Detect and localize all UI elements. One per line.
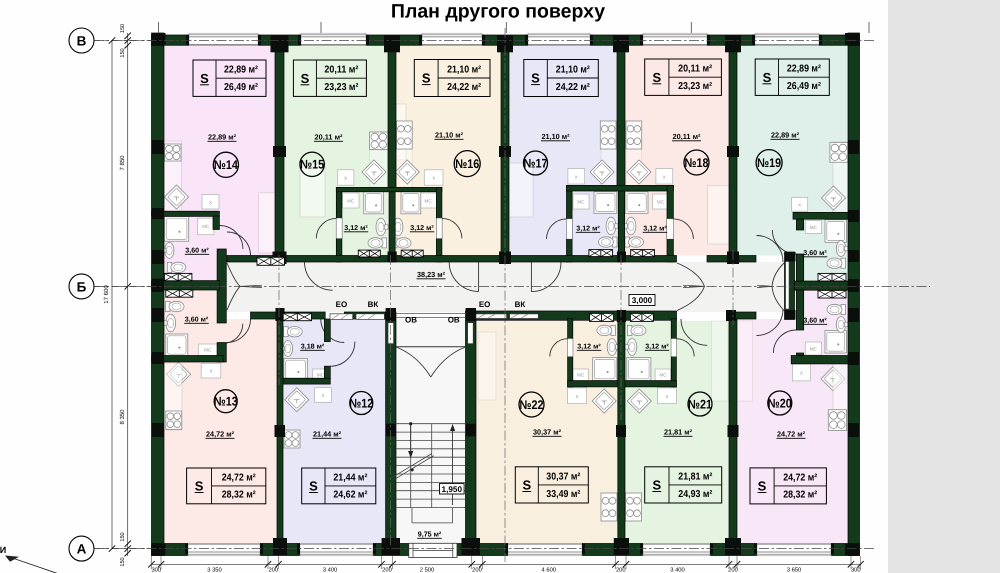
svg-text:23,23 м²: 23,23 м² [678, 81, 713, 92]
svg-text:S: S [309, 479, 318, 494]
svg-text:4 600: 4 600 [542, 567, 557, 573]
svg-text:17 600: 17 600 [103, 285, 110, 304]
svg-text:3,18 м²: 3,18 м² [301, 344, 325, 351]
svg-text:№13: №13 [214, 395, 238, 409]
svg-text:№14: №14 [214, 158, 238, 172]
svg-text:38,23 м²: 38,23 м² [417, 270, 446, 279]
svg-text:ВК: ВК [515, 300, 526, 309]
svg-text:3,12 м²: 3,12 м² [576, 226, 600, 233]
svg-text:x: x [575, 174, 578, 180]
svg-text:№15: №15 [300, 158, 324, 172]
svg-text:x: x [210, 369, 213, 375]
svg-text:30,37 м²: 30,37 м² [533, 428, 562, 437]
svg-text:3 400: 3 400 [323, 567, 338, 573]
svg-text:21,10 м²: 21,10 м² [542, 132, 571, 141]
svg-text:26,49 м²: 26,49 м² [787, 81, 822, 92]
svg-text:Б: Б [77, 279, 87, 294]
svg-text:3 400: 3 400 [670, 567, 685, 573]
svg-text:23,23 м²: 23,23 м² [324, 82, 359, 93]
svg-text:30,37 м²: 30,37 м² [546, 472, 581, 483]
svg-text:S: S [758, 479, 767, 494]
svg-text:24,22 м²: 24,22 м² [556, 82, 591, 93]
svg-text:200: 200 [472, 567, 482, 573]
svg-text:№18: №18 [685, 156, 709, 170]
svg-text:x: x [344, 176, 347, 182]
svg-text:МС: МС [204, 348, 212, 353]
svg-text:3,60 м²: 3,60 м² [185, 317, 209, 324]
svg-text:План другого поверху: План другого поверху [391, 1, 605, 23]
svg-text:20,11 м²: 20,11 м² [673, 132, 702, 141]
svg-text:№20: №20 [768, 396, 792, 410]
svg-text:2 500: 2 500 [420, 567, 435, 573]
svg-text:S: S [422, 71, 431, 86]
svg-text:МС: МС [577, 373, 585, 378]
svg-text:200: 200 [382, 567, 392, 573]
svg-text:№19: №19 [757, 156, 781, 170]
svg-text:№12: №12 [349, 396, 373, 410]
svg-text:3,000: 3,000 [632, 296, 653, 305]
svg-text:МС: МС [577, 199, 585, 204]
svg-text:x: x [663, 174, 666, 180]
svg-text:S: S [652, 70, 661, 85]
svg-text:№16: №16 [455, 157, 479, 171]
svg-text:МС: МС [657, 199, 665, 204]
svg-text:S: S [195, 479, 204, 494]
svg-text:МС: МС [347, 198, 355, 203]
svg-text:200: 200 [728, 567, 738, 573]
svg-text:24,72 м²: 24,72 м² [777, 430, 806, 439]
svg-text:S: S [522, 478, 531, 493]
svg-text:3,12 м²: 3,12 м² [344, 225, 368, 232]
svg-text:МС: МС [202, 224, 210, 229]
svg-text:S: S [652, 478, 661, 493]
svg-text:3,60 м²: 3,60 м² [803, 250, 827, 257]
svg-text:x: x [800, 370, 803, 376]
svg-text:В: В [77, 34, 87, 49]
svg-text:МС: МС [810, 346, 818, 351]
svg-text:S: S [531, 71, 540, 86]
svg-text:x: x [322, 393, 325, 399]
svg-text:3,12 м²: 3,12 м² [643, 226, 667, 233]
svg-text:22,89 м²: 22,89 м² [771, 131, 800, 140]
svg-text:150: 150 [120, 532, 126, 541]
svg-text:21,44 м²: 21,44 м² [313, 430, 342, 439]
svg-text:150: 150 [120, 557, 126, 566]
svg-text:28,32 м²: 28,32 м² [222, 490, 257, 501]
svg-text:300: 300 [851, 567, 861, 573]
svg-text:22,89 м²: 22,89 м² [208, 133, 237, 142]
svg-text:x: x [666, 394, 669, 400]
svg-text:24,22 м²: 24,22 м² [447, 82, 482, 93]
svg-text:3,12 м²: 3,12 м² [410, 225, 434, 232]
svg-text:x: x [576, 394, 579, 400]
svg-text:9,75 м²: 9,75 м² [418, 530, 442, 539]
svg-text:200: 200 [616, 567, 626, 573]
svg-text:150: 150 [120, 48, 126, 57]
svg-text:22,89 м²: 22,89 м² [224, 65, 259, 76]
svg-text:22,89 м²: 22,89 м² [787, 64, 822, 75]
svg-text:S: S [301, 71, 310, 86]
svg-text:МС: МС [810, 225, 818, 230]
svg-text:1,950: 1,950 [442, 485, 463, 494]
svg-text:3 350: 3 350 [207, 567, 222, 573]
svg-text:20,11 м²: 20,11 м² [678, 64, 713, 75]
svg-text:x: x [209, 200, 212, 206]
svg-text:№21: №21 [688, 397, 712, 411]
svg-text:МС: МС [425, 198, 433, 203]
svg-text:ЕО: ЕО [479, 300, 491, 309]
svg-text:20,11 м²: 20,11 м² [315, 133, 344, 142]
svg-text:24,72 м²: 24,72 м² [222, 473, 257, 484]
svg-text:21,10 м²: 21,10 м² [435, 131, 464, 140]
svg-text:3,60 м²: 3,60 м² [185, 248, 209, 255]
svg-text:8 350: 8 350 [119, 409, 126, 425]
svg-text:24,72 м²: 24,72 м² [783, 473, 818, 484]
svg-text:ОВ: ОВ [405, 316, 417, 325]
svg-text:7 850: 7 850 [119, 155, 126, 171]
svg-text:ОВ: ОВ [448, 316, 460, 325]
svg-text:3,12 м²: 3,12 м² [577, 344, 601, 351]
svg-text:3,12 м²: 3,12 м² [645, 344, 669, 351]
svg-text:x: x [432, 176, 435, 182]
svg-text:МС: МС [659, 373, 667, 378]
svg-text:x: x [798, 202, 801, 208]
svg-text:28,32 м²: 28,32 м² [783, 490, 818, 501]
svg-text:А: А [77, 542, 87, 557]
svg-text:21,10 м²: 21,10 м² [556, 64, 591, 75]
svg-text:№22: №22 [520, 398, 544, 412]
svg-text:ВК: ВК [368, 300, 379, 309]
svg-text:300: 300 [151, 567, 161, 573]
svg-text:S: S [200, 71, 209, 86]
svg-text:S: S [763, 70, 772, 85]
svg-text:33,49 м²: 33,49 м² [546, 489, 581, 500]
svg-text:24,62 м²: 24,62 м² [333, 490, 368, 501]
svg-text:И: И [0, 545, 6, 555]
svg-text:20,11 м²: 20,11 м² [324, 65, 359, 76]
svg-text:21,81 м²: 21,81 м² [678, 472, 713, 483]
svg-text:МС: МС [317, 372, 325, 377]
svg-text:3,60 м²: 3,60 м² [803, 318, 827, 325]
svg-text:24,72 м²: 24,72 м² [206, 430, 235, 439]
svg-text:200: 200 [268, 567, 278, 573]
svg-text:26,49 м²: 26,49 м² [224, 82, 259, 93]
svg-text:21,10 м²: 21,10 м² [447, 64, 482, 75]
svg-text:3 650: 3 650 [787, 567, 802, 573]
svg-text:150: 150 [120, 24, 126, 33]
svg-text:21,44 м²: 21,44 м² [333, 473, 368, 484]
svg-text:ЕО: ЕО [336, 300, 348, 309]
svg-text:№17: №17 [524, 156, 548, 170]
svg-text:21,81 м²: 21,81 м² [664, 428, 693, 437]
svg-text:24,93 м²: 24,93 м² [678, 489, 713, 500]
